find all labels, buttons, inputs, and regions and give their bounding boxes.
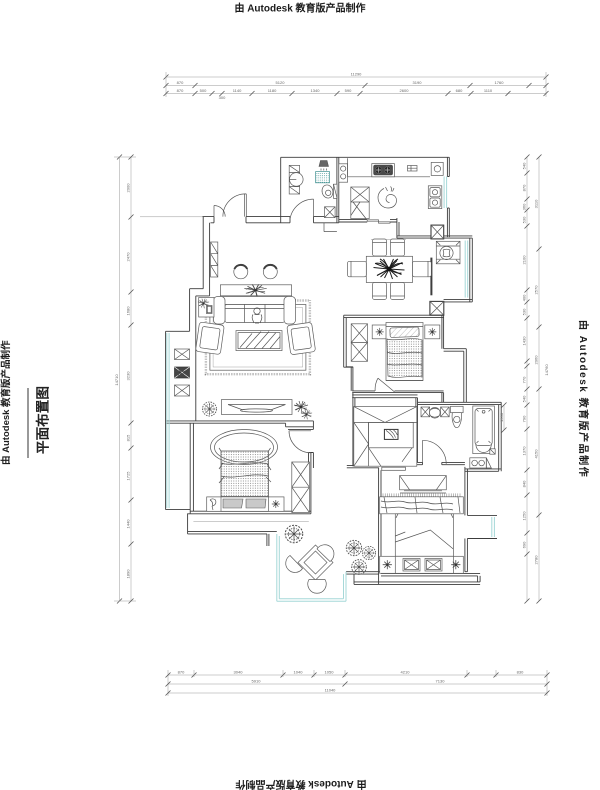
- svg-text:1250: 1250: [522, 511, 527, 521]
- svg-text:690: 690: [522, 541, 527, 548]
- svg-text:870: 870: [177, 80, 184, 85]
- svg-text:7130: 7130: [436, 679, 446, 684]
- svg-text:1180: 1180: [268, 88, 277, 93]
- svg-text:1140: 1140: [233, 88, 242, 93]
- svg-text:870: 870: [522, 184, 527, 191]
- svg-text:14760: 14760: [544, 364, 549, 376]
- svg-text:1370: 1370: [522, 446, 527, 456]
- svg-text:790: 790: [522, 415, 527, 422]
- svg-text:815: 815: [126, 434, 131, 441]
- svg-text:530: 530: [522, 308, 527, 315]
- svg-text:2570: 2570: [534, 285, 539, 295]
- svg-text:平面布置图: 平面布置图: [35, 386, 51, 454]
- svg-text:530: 530: [522, 216, 527, 223]
- svg-text:870: 870: [178, 670, 185, 675]
- svg-text:1680: 1680: [126, 306, 131, 316]
- svg-text:3110: 3110: [534, 199, 539, 208]
- svg-text:830: 830: [517, 670, 524, 675]
- svg-text:1110: 1110: [484, 88, 493, 93]
- svg-text:由 Autodesk 教育版产品制作: 由 Autodesk 教育版产品制作: [0, 340, 12, 465]
- svg-text:3040: 3040: [234, 670, 244, 675]
- svg-text:360: 360: [522, 203, 527, 210]
- svg-text:1040: 1040: [294, 670, 304, 675]
- svg-text:1890: 1890: [126, 569, 131, 579]
- svg-text:5910: 5910: [252, 679, 262, 684]
- svg-text:1760: 1760: [495, 80, 505, 85]
- svg-text:400: 400: [522, 294, 527, 301]
- svg-text:由 Autodesk 教育版产品制作: 由 Autodesk 教育版产品制作: [235, 778, 366, 790]
- svg-text:2100: 2100: [522, 255, 527, 265]
- svg-text:840: 840: [522, 480, 527, 487]
- svg-text:2000: 2000: [126, 183, 131, 193]
- svg-text:1440: 1440: [126, 519, 131, 529]
- svg-text:1500: 1500: [499, 412, 504, 422]
- svg-text:540: 540: [522, 162, 527, 169]
- svg-text:1430: 1430: [522, 336, 527, 346]
- svg-text:680: 680: [456, 88, 463, 93]
- svg-text:4150: 4150: [534, 449, 539, 459]
- svg-text:11040: 11040: [325, 688, 337, 693]
- svg-text:770: 770: [522, 376, 527, 383]
- svg-text:300: 300: [219, 95, 226, 100]
- svg-text:5120: 5120: [276, 80, 286, 85]
- svg-text:2600: 2600: [400, 88, 410, 93]
- svg-text:由 Autodesk 教育版产品制作: 由 Autodesk 教育版产品制作: [577, 320, 590, 478]
- svg-text:1725: 1725: [126, 471, 131, 481]
- svg-text:2060: 2060: [534, 355, 539, 365]
- svg-text:3230: 3230: [126, 371, 131, 381]
- svg-text:2470: 2470: [126, 252, 131, 262]
- svg-text:由 Autodesk 教育版产品制作: 由 Autodesk 教育版产品制作: [234, 2, 365, 15]
- svg-text:1340: 1340: [311, 88, 321, 93]
- svg-text:3190: 3190: [413, 80, 423, 85]
- svg-text:11290: 11290: [351, 72, 363, 77]
- svg-text:4210: 4210: [401, 670, 411, 675]
- svg-text:2780: 2780: [534, 555, 539, 565]
- svg-text:1050: 1050: [325, 670, 335, 675]
- svg-text:14710: 14710: [114, 374, 119, 386]
- svg-text:590: 590: [345, 88, 352, 93]
- svg-text:540: 540: [522, 395, 527, 402]
- svg-text:500: 500: [200, 88, 207, 93]
- svg-text:870: 870: [177, 88, 184, 93]
